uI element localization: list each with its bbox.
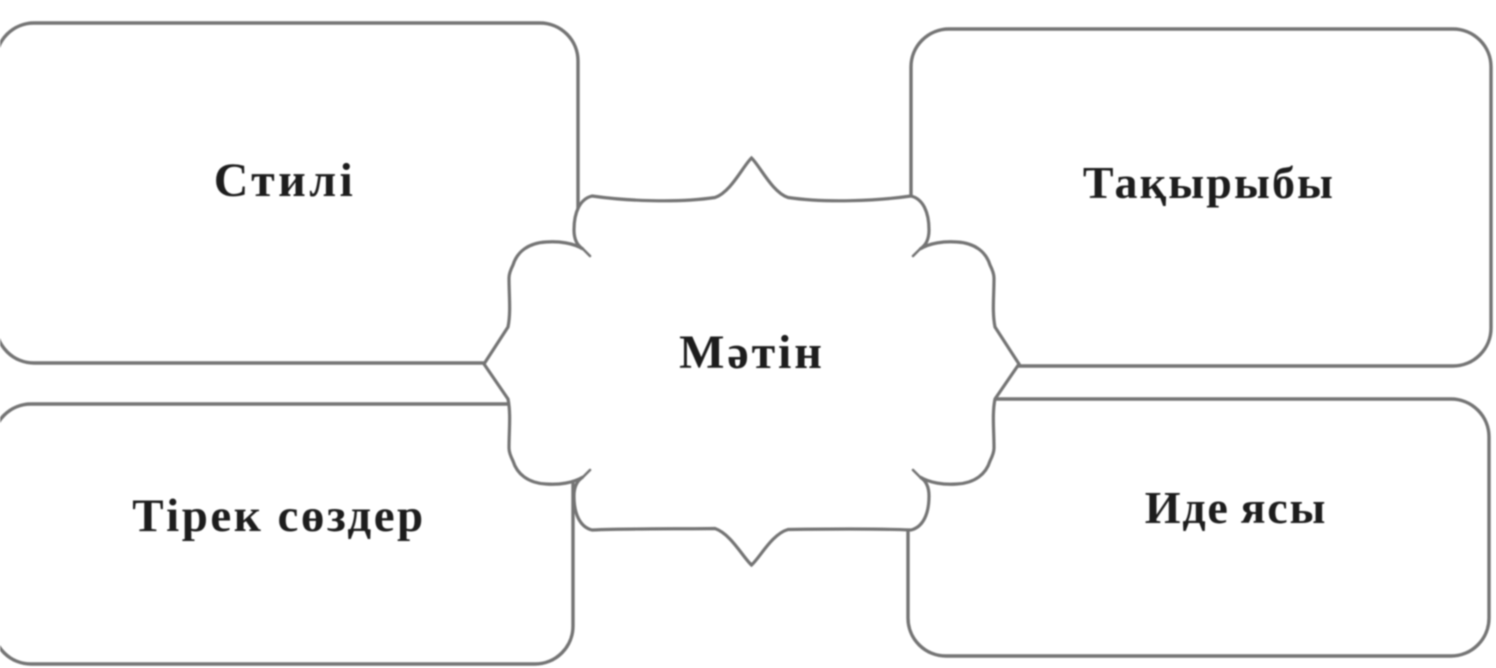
svg-text:Стилі: Стилі: [214, 154, 357, 207]
svg-text:Тірек сөздер: Тірек сөздер: [132, 490, 425, 542]
svg-text:Иде ясы: Иде ясы: [1145, 482, 1328, 533]
svg-text:Мәтін: Мәтін: [679, 326, 825, 379]
svg-text:Тақырыбы: Тақырыбы: [1083, 157, 1335, 208]
